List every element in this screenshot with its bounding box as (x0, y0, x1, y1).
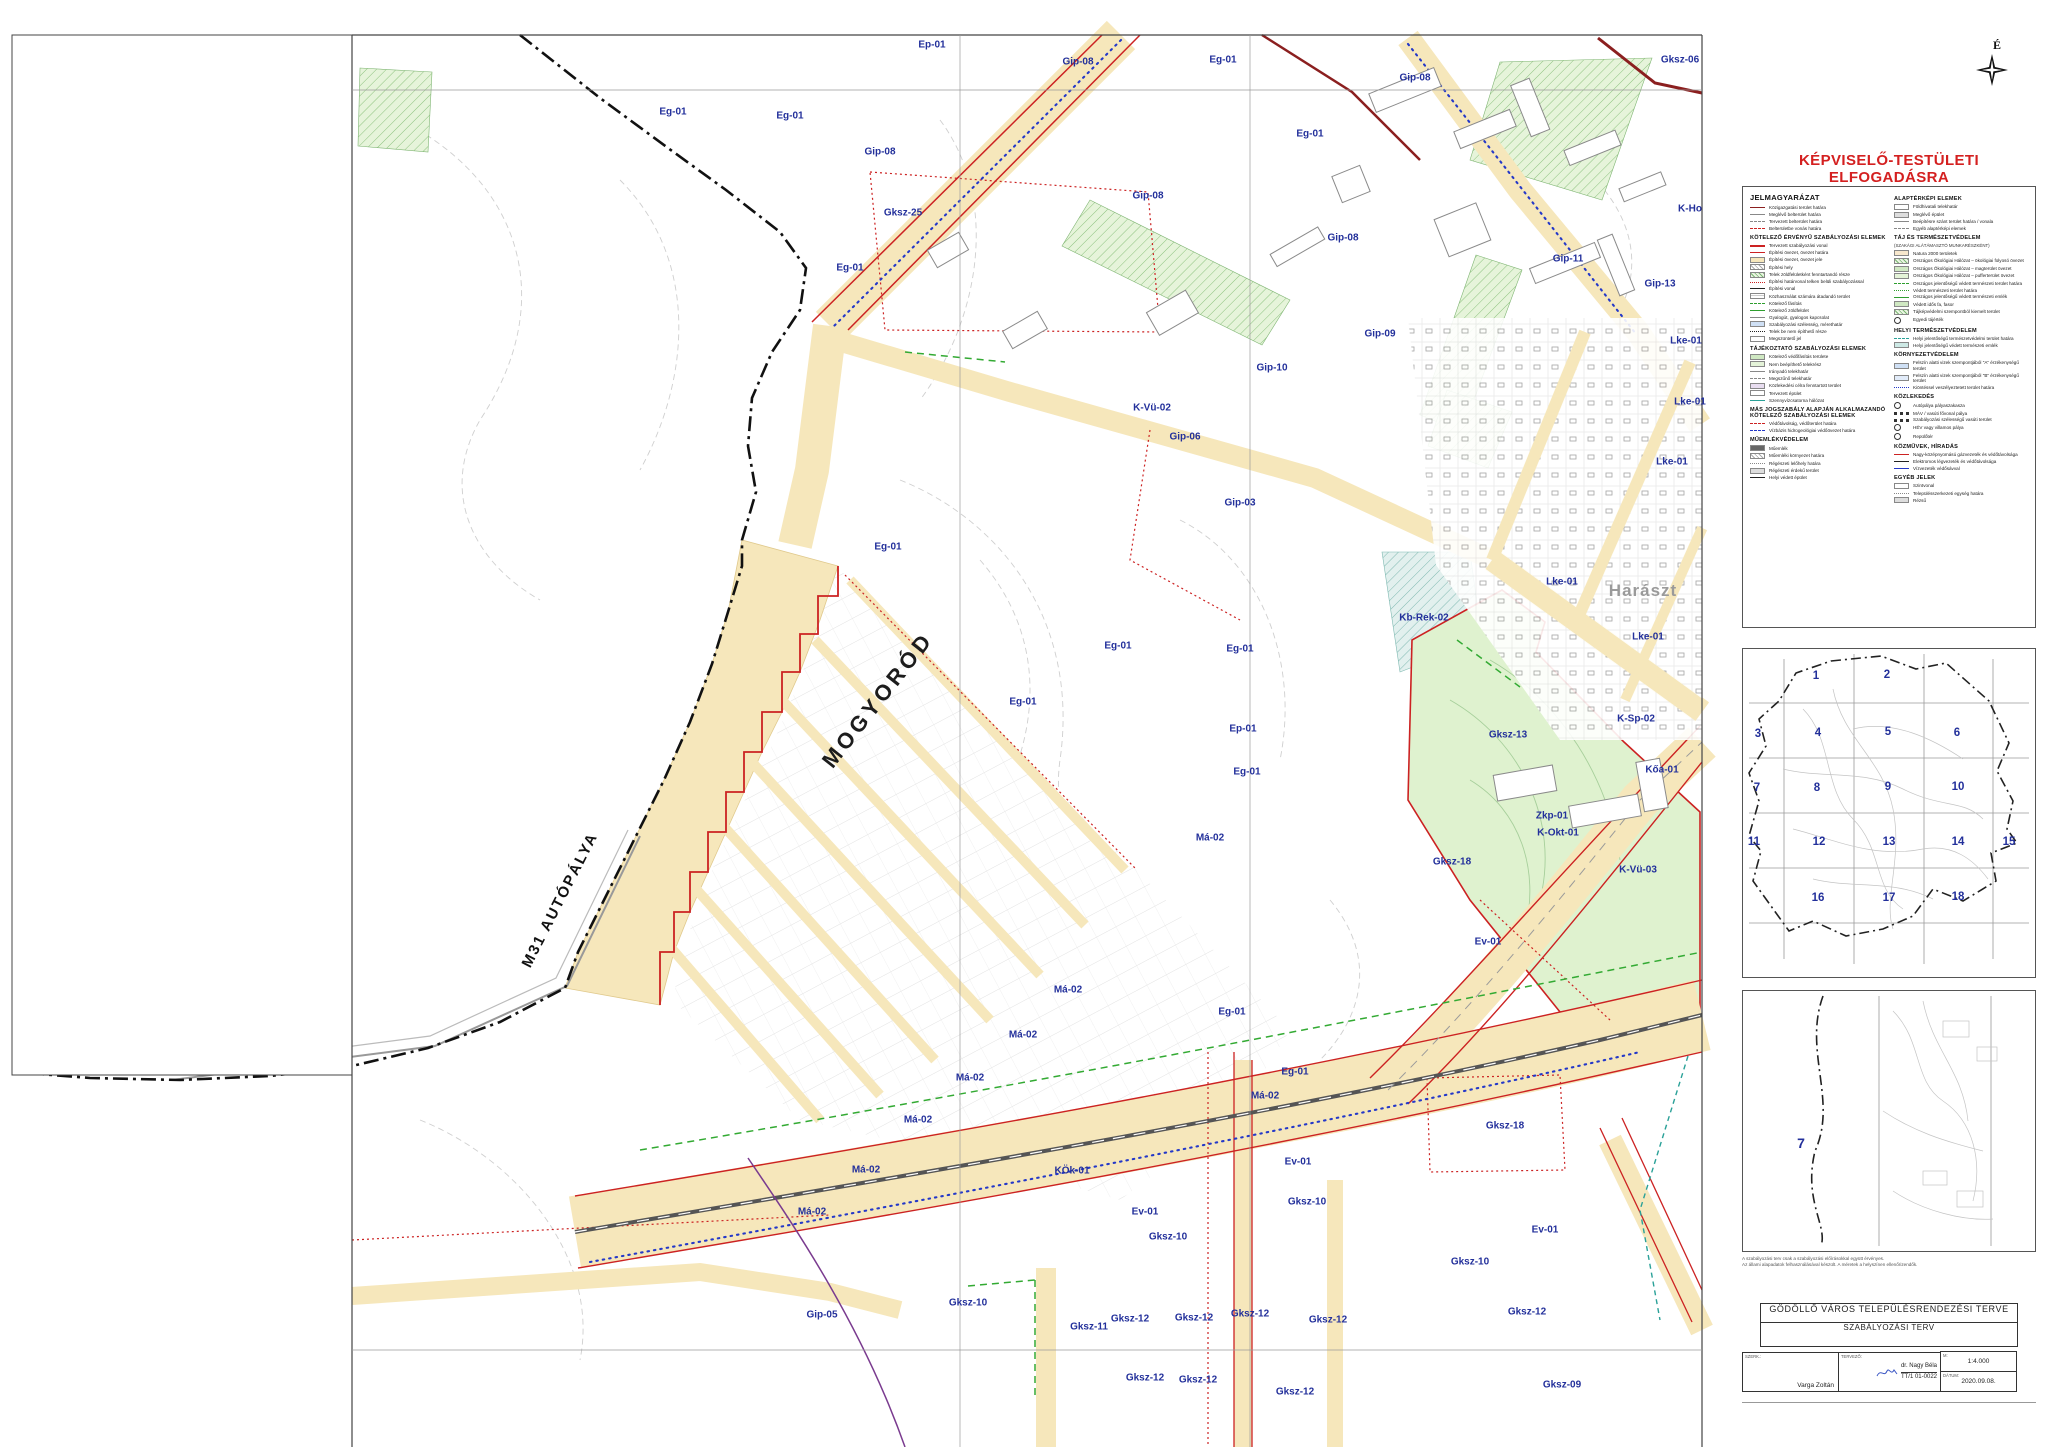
detail-sheet-number: 7 (1797, 1135, 1805, 1151)
legend-swatch (1750, 272, 1765, 278)
legend-item: Műemléki környezet határa (1750, 453, 1886, 459)
legend-item-label: Beépítésre szánt terület határa / vonala (1913, 219, 1993, 224)
legend-item: Tervezett épület (1750, 390, 1886, 396)
legend-item-label: Védett idős fa, fasor (1913, 302, 1954, 307)
legend-item: Repülőtér (1894, 433, 2030, 440)
legend-swatch (1894, 228, 1909, 229)
legend-item: Országos Ökológiai Hálózat – magterület … (1894, 266, 2030, 272)
compass-icon (1975, 53, 2009, 87)
overview-sheet-number: 8 (1814, 782, 1820, 794)
legend-swatch (1750, 310, 1765, 311)
legend-item: Kötelező fásítás (1750, 301, 1886, 306)
legend-column-2: ALAPTÉRKÉPI ELEMEKFöldhivatali telekhatá… (1894, 192, 2030, 625)
legend-swatch (1894, 387, 1909, 388)
legend-item: Megszűnő telekhatár (1750, 376, 1886, 381)
north-arrow: É (1975, 38, 2019, 87)
legend-swatch (1750, 228, 1765, 229)
legend-item-label: Meglévő épület (1913, 212, 1944, 217)
legend-swatch (1894, 258, 1909, 264)
overview-sheet-number: 10 (1952, 781, 1965, 793)
overview-sheet-number: 16 (1812, 892, 1825, 904)
legend-item: Településszerkezeti egység határa (1894, 491, 2030, 496)
legend-item-label: Országos Ökológiai Hálózat – magterület … (1913, 266, 2012, 271)
legend-item: Felszín alatti vizek szempontjából "B" é… (1894, 373, 2030, 384)
legend-item-label: Tervezett épület (1769, 391, 1801, 396)
legend-item-label: Kiöntéssel veszélyeztetett terület határ… (1913, 385, 1994, 390)
legend-section-header: HELYI TERMÉSZETVÉDELEM (1894, 328, 2030, 334)
legend-item-label: MÁV / vasúti fővonal pálya (1913, 411, 1967, 416)
overview-sheet-numbers: 123456789101112131415161718 (1743, 649, 2035, 977)
legend-item-label: Vízvezeték védősávval (1913, 466, 1960, 471)
overview-sheet-number: 1 (1813, 670, 1819, 682)
legend-swatch (1750, 207, 1765, 208)
legend-section-header: EGYÉB JELEK (1894, 475, 2030, 481)
overview-sheet-number: 6 (1954, 727, 1960, 739)
legend-swatch (1894, 317, 1901, 324)
overview-sheet-number: 13 (1883, 836, 1896, 848)
legend-item: Közlekedési célra fenntartott terület (1750, 383, 1886, 389)
legend-item: Gyalogút, gyalogos kapcsolat (1750, 315, 1886, 320)
legend-item-label: Építési övezet, övezet jele (1769, 257, 1822, 262)
drafter-name: Varga Zoltán (1797, 1382, 1834, 1389)
legend-swatch (1894, 468, 1909, 469)
legend-item: Helyi jelentőségű védett természeti emlé… (1894, 342, 2030, 348)
legend-item: MÁV / vasúti fővonal pálya (1894, 411, 2030, 416)
legend-item-label: Meglévő belterület határa (1769, 212, 1821, 217)
legend-swatch (1894, 424, 1901, 431)
legend-item-label: Megszűnő telekhatár (1769, 376, 1812, 381)
legend-item: Építési vonal (1750, 286, 1886, 291)
plan-title: GÖDÖLLŐ VÁROS TELEPÜLÉSRENDEZÉSI TERVE (1760, 1303, 2018, 1323)
legend-item: Vízbázis hidrogeológiai védőövezet határ… (1750, 428, 1886, 433)
legend-item-label: Régészeti érdekű terület (1769, 468, 1819, 473)
legend-swatch (1750, 214, 1765, 215)
legend-item: Belterületbe vonás határa (1750, 226, 1886, 231)
legend-swatch (1750, 423, 1765, 424)
legend-item-label: Földhivatali telekhatár (1913, 204, 1958, 209)
legend-swatch (1750, 400, 1765, 401)
legend-item: Rézsű (1894, 497, 2030, 503)
legend-item-label: Nem beépíthető telekrész (1769, 362, 1821, 367)
legend-item-label: Tervezett szabályozási vonal (1769, 243, 1827, 248)
legend-item: Védett idős fa, fasor (1894, 301, 2030, 307)
legend-item: Egyedi tájérték (1894, 317, 2030, 324)
legend-item: Felszín alatti vizek szempontjából "A" é… (1894, 360, 2030, 371)
legend-title: JELMAGYARÁZAT (1750, 193, 1886, 202)
legend-item-label: Helyi jelentőségű természetvédelmi terül… (1913, 336, 2014, 341)
legend-item-label: Közlekedési célra fenntartott terület (1769, 383, 1841, 388)
legend-item: Kiöntéssel veszélyeztetett terület határ… (1894, 385, 2030, 390)
legend-item-label: Országos Ökológiai Hálózat – ökológiai f… (1913, 258, 2024, 263)
legend-swatch (1750, 354, 1765, 360)
legend-swatch (1894, 301, 1909, 307)
legend-item: Szennyvízcsatorna hálózat (1750, 398, 1886, 403)
overview-sheet-number: 4 (1815, 727, 1821, 739)
legend-item-label: Építési hely (1769, 265, 1793, 270)
signature-icon (1876, 1364, 1898, 1380)
legend-item-label: Kötelező védőfásítás területe (1769, 354, 1828, 359)
legend-item: Beépítésre szánt terület határa / vonala (1894, 219, 2030, 224)
legend-swatch (1750, 331, 1765, 332)
legend-item-label: Közhasználat számára átadandó terület (1769, 294, 1850, 299)
legend-item: Szabályozási szélesség, mérethatár (1750, 321, 1886, 327)
legend-item-label: Natura 2000 területek (1913, 251, 1957, 256)
legend-section-header: TÁJÉKOZTATÓ SZABÁLYOZÁSI ELEMEK (1750, 346, 1886, 352)
legend-item-label: Védőtávolság, védőterület határa (1769, 421, 1836, 426)
legend-swatch (1894, 273, 1909, 279)
legend-swatch (1894, 454, 1909, 455)
legend-item: Szabályozási szélességű vasúti terület (1894, 417, 2030, 422)
legend-item: Építési határvonal telken belüli szabály… (1750, 279, 1886, 284)
legend-item: Tervezett belterület határa (1750, 219, 1886, 224)
legend-swatch (1894, 493, 1909, 494)
legend-item-label: Szennyvízcsatorna hálózat (1769, 398, 1824, 403)
legend-item: HÉV vagy villamos pálya (1894, 424, 2030, 431)
legend-swatch (1750, 468, 1765, 474)
legend-section-header: ALAPTÉRKÉPI ELEMEK (1894, 196, 2030, 202)
legend-swatch (1750, 264, 1765, 270)
legend-item: Építési övezet, övezet határa (1750, 250, 1886, 255)
legend-section-header: KÖTELEZŐ ÉRVÉNYŰ SZABÁLYOZÁSI ELEMEK (1750, 235, 1886, 241)
legend-panel: JELMAGYARÁZAT Közigazgatási terület hatá… (1742, 186, 2036, 628)
legend-item-label: Közigazgatási terület határa (1769, 205, 1826, 210)
legend-item-label: Telek be nem építhető része (1769, 329, 1827, 334)
legend-item: Közhasználat számára átadandó terület (1750, 293, 1886, 299)
scale-value: 1:4.000 (1968, 1358, 1990, 1365)
legend-swatch (1750, 221, 1765, 222)
legend-swatch (1750, 390, 1765, 396)
detail-keymap: 7 (1742, 990, 2036, 1252)
legend-item-label: Nagy-középnyomású gázvezeték és védőtávo… (1913, 452, 2018, 457)
legend-item: Vízvezeték védősávval (1894, 466, 2030, 471)
legend-item: Meglévő épület (1894, 212, 2030, 218)
legend-item: Műemlék (1750, 445, 1886, 451)
legend-item-label: Helyi jelentőségű védett természeti emlé… (1913, 343, 1998, 348)
legend-item-label: Repülőtér (1913, 434, 1933, 439)
overview-sheet-number: 18 (1952, 891, 1965, 903)
legend-item-label: Tervezett belterület határa (1769, 219, 1822, 224)
legend-swatch (1750, 463, 1765, 464)
legend-item-label: Építési határvonal telken belüli szabály… (1769, 279, 1864, 284)
legend-item: Védőtávolság, védőterület határa (1750, 421, 1886, 426)
planner-cell: TERVEZŐ: dr. Nagy Béla TT/1 01-0022 (1838, 1352, 1941, 1392)
legend-item-label: Felszín alatti vizek szempontjából "B" é… (1913, 373, 2030, 384)
legend-swatch (1750, 336, 1765, 342)
legend-item-label: Rézsű (1913, 498, 1926, 503)
legend-item-label: Műemlék (1769, 446, 1788, 451)
legend-item-label: Szabályozási szélességű vasúti terület (1913, 417, 1992, 422)
legend-swatch (1894, 309, 1909, 315)
legend-swatch (1750, 321, 1765, 327)
legend-item: Tervezett szabályozási vonal (1750, 243, 1886, 248)
legend-item: Egyéb alaptérképi elemek (1894, 226, 2030, 231)
overview-sheet-number: 17 (1883, 892, 1896, 904)
legend-item: Építési övezet, övezet jele (1750, 257, 1886, 263)
overview-sheet-number: 14 (1952, 836, 1965, 848)
legend-swatch (1894, 342, 1909, 348)
legend-swatch (1750, 430, 1765, 431)
legend-item-label: Országos jelentőségű védett természeti e… (1913, 294, 2007, 299)
legend-swatch (1894, 338, 1909, 339)
legend-item: Autópálya pályaszakasza (1894, 402, 2030, 409)
legend-swatch (1750, 445, 1765, 451)
legend-item: Helyi jelentőségű természetvédelmi terül… (1894, 336, 2030, 341)
legend-item: Országos jelentőségű védett természeti t… (1894, 281, 2030, 286)
legend-swatch (1894, 297, 1909, 298)
legend-swatch (1894, 204, 1909, 210)
legend-item-label: Irányadó telekhatár (1769, 369, 1808, 374)
legend-item: Megszüntető jel (1750, 336, 1886, 342)
legend-swatch (1750, 371, 1765, 372)
legend-item-label: Építési övezet, övezet határa (1769, 250, 1828, 255)
legend-item-label: Helyi védett épület (1769, 475, 1807, 480)
legend-item-label: Egyedi tájérték (1913, 317, 1943, 322)
legend-item: Régészeti lelőhely határa (1750, 461, 1886, 466)
legend-swatch (1894, 402, 1901, 409)
detail-keymap-drawing (1743, 991, 2035, 1251)
legend-item: Védett természeti terület határa (1894, 288, 2030, 293)
legend-swatch (1894, 283, 1909, 284)
overview-sheet-number: 9 (1885, 781, 1891, 793)
legend-item: Telek be nem építhető része (1750, 329, 1886, 334)
legend-item: Földhivatali telekhatár (1894, 204, 2030, 210)
planner-label: TERVEZŐ: (1841, 1354, 1862, 1359)
legend-item: Meglévő belterület határa (1750, 212, 1886, 217)
legend-item-label: Elektromos légvezeték és védőtávolsága (1913, 459, 1996, 464)
scale-label: M: (1943, 1353, 1948, 1358)
legend-item-label: Tájképvédelmi szempontból kiemelt terüle… (1913, 309, 2000, 314)
legend-item-label: Műemléki környezet határa (1769, 453, 1824, 458)
legend-swatch (1894, 497, 1909, 503)
legend-section-header: KÖZLEKEDÉS (1894, 394, 2030, 400)
legend-swatch (1894, 412, 1909, 415)
legend-section-subheader: (SZAKÁGI ALÁTÁMASZTÓ MUNKARÉSZKÉNT) (1894, 243, 2030, 248)
overview-sheet-number: 3 (1755, 728, 1761, 740)
legend-item-label: Szintvonal (1913, 483, 1934, 488)
legend-item-label: Településszerkezeti egység határa (1913, 491, 1983, 496)
legend-item: Közigazgatási terület határa (1750, 205, 1886, 210)
legend-item: Irányadó telekhatár (1750, 369, 1886, 374)
legend-item-label: Egyéb alaptérképi elemek (1913, 226, 1966, 231)
legend-swatch (1750, 317, 1765, 318)
legend-item: Országos Ökológiai Hálózat – pufferterül… (1894, 273, 2030, 279)
legend-section-header: MŰEMLÉKVÉDELEM (1750, 437, 1886, 443)
legend-item: Országos jelentőségű védett természeti e… (1894, 294, 2030, 299)
legend-swatch (1894, 363, 1909, 369)
legend-item-label: Építési vonal (1769, 286, 1795, 291)
overview-sheet-number: 12 (1813, 836, 1826, 848)
drafter-cell: SZERK.: Varga Zoltán (1742, 1352, 1839, 1392)
overview-sheet-number: 7 (1754, 782, 1760, 794)
legend-item: Szintvonal (1894, 483, 2030, 489)
overview-sheet-number: 15 (2003, 836, 2016, 848)
legend-item: Nem beépíthető telekrész (1750, 361, 1886, 367)
legend-swatch (1750, 453, 1765, 459)
legend-item: Országos Ökológiai Hálózat – ökológiai f… (1894, 258, 2030, 264)
title-block: GÖDÖLLŐ VÁROS TELEPÜLÉSRENDEZÉSI TERVE S… (1742, 1303, 2018, 1392)
legend-item-label: HÉV vagy villamos pálya (1913, 425, 1964, 430)
legend-swatch (1894, 221, 1909, 222)
legend-swatch (1750, 245, 1765, 247)
plan-subtitle: SZABÁLYOZÁSI TERV (1760, 1322, 2018, 1347)
legend-item-label: Megszüntető jel (1769, 336, 1801, 341)
overview-sheet-number: 2 (1884, 669, 1890, 681)
date-label: DÁTUM: (1943, 1373, 1959, 1378)
legend-item-label: Felszín alatti vizek szempontjából "A" é… (1913, 360, 2030, 371)
legend-item: Kötelező védőfásítás területe (1750, 354, 1886, 360)
legend-item-label: Védett természeti terület határa (1913, 288, 1977, 293)
legend-swatch (1750, 257, 1765, 263)
map-canvas (0, 0, 2048, 1447)
legend-item-label: Autópálya pályaszakasza (1913, 403, 1965, 408)
legend-item-label: Vízbázis hidrogeológiai védőövezet határ… (1769, 428, 1855, 433)
plan-sheet: Ep-01Gip-08Eg-01Eg-01Gip-08Eg-01Gksz-06E… (0, 0, 2048, 1447)
legend-swatch (1894, 266, 1909, 272)
date-value: 2020.09.08. (1961, 1378, 1995, 1385)
legend-item: Elektromos légvezeték és védőtávolsága (1894, 459, 2030, 464)
legend-item: Natura 2000 területek (1894, 250, 2030, 256)
footnote: A szabályozási terv csak a szabályozási … (1742, 1256, 2036, 1269)
legend-swatch (1894, 375, 1909, 381)
date-cell: DÁTUM: 2020.09.08. (1940, 1371, 2017, 1392)
legend-item-label: Belterületbe vonás határa (1769, 226, 1821, 231)
scale-cell: M: 1:4.000 (1940, 1351, 2017, 1372)
legend-item-label: Telek zöldfelületként fenntartandó része (1769, 272, 1850, 277)
footnote-line2: Az állami alapadatok felhasználásával ké… (1742, 1262, 2036, 1268)
legend-section-header: MÁS JOGSZABÁLY ALAPJÁN ALKALMAZANDÓ KÖTE… (1750, 407, 1886, 419)
legend-swatch (1750, 282, 1765, 283)
legend-item: Telek zöldfelületként fenntartandó része (1750, 272, 1886, 278)
legend-item: Helyi védett épület (1750, 475, 1886, 480)
legend-section-header: KÖRNYEZETVÉDELEM (1894, 352, 2030, 358)
legend-section-header: TÁJ ÉS TERMÉSZETVÉDELEM (1894, 235, 2030, 241)
legend-item-label: Országos jelentőségű védett természeti t… (1913, 281, 2022, 286)
overview-sheet-number: 5 (1885, 726, 1891, 738)
legend-swatch (1750, 383, 1765, 389)
planner-name: dr. Nagy Béla (1901, 1362, 1937, 1373)
legend-swatch (1750, 378, 1765, 379)
legend-swatch (1750, 288, 1765, 289)
legend-swatch (1750, 361, 1765, 367)
planner-licence: TT/1 01-0022 (1901, 1374, 1937, 1380)
legend-swatch (1894, 212, 1909, 218)
legend-item-label: Kötelező fásítás (1769, 301, 1802, 306)
legend-swatch (1750, 252, 1765, 253)
legend-swatch (1894, 433, 1901, 440)
legend-section-header: KÖZMŰVEK, HÍRADÁS (1894, 444, 2030, 450)
legend-item: Nagy-középnyomású gázvezeték és védőtávo… (1894, 452, 2030, 457)
title-block-rule (1742, 1402, 2036, 1403)
approval-status-title: KÉPVISELŐ-TESTÜLETI ELFOGADÁSRA (1742, 152, 2036, 186)
legend-swatch (1894, 250, 1909, 256)
north-label: É (1975, 38, 2019, 53)
legend-item: Régészeti érdekű terület (1750, 468, 1886, 474)
legend-swatch (1894, 461, 1909, 462)
legend-item: Építési hely (1750, 264, 1886, 270)
legend-swatch (1750, 293, 1765, 299)
legend-swatch (1894, 419, 1909, 422)
overview-sheet-number: 11 (1748, 836, 1760, 848)
drafter-label: SZERK.: (1745, 1354, 1761, 1359)
legend-swatch (1750, 303, 1765, 304)
legend-swatch (1894, 483, 1909, 489)
legend-item-label: Szabályozási szélesség, mérethatár (1769, 322, 1843, 327)
legend-item: Tájképvédelmi szempontból kiemelt terüle… (1894, 309, 2030, 315)
legend-swatch (1750, 477, 1765, 478)
legend-item-label: Országos Ökológiai Hálózat – pufferterül… (1913, 273, 2014, 278)
legend-column-1: JELMAGYARÁZAT Közigazgatási terület hatá… (1750, 192, 1886, 625)
legend-item-label: Gyalogút, gyalogos kapcsolat (1769, 315, 1829, 320)
legend-item-label: Kötelező zöldfelület (1769, 308, 1809, 313)
overview-keymap: 123456789101112131415161718 (1742, 648, 2036, 978)
legend-item: Kötelező zöldfelület (1750, 308, 1886, 313)
legend-item-label: Régészeti lelőhely határa (1769, 461, 1821, 466)
legend-swatch (1894, 290, 1909, 291)
